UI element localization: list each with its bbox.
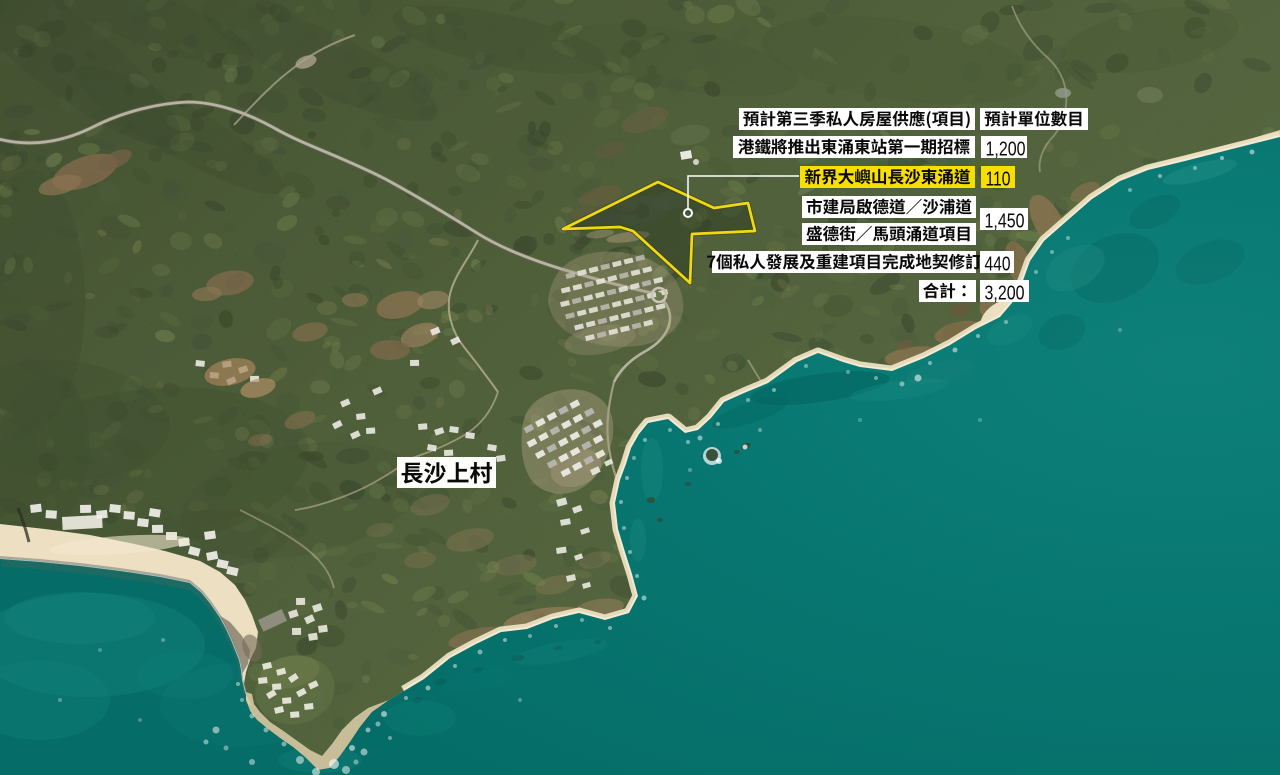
- svg-text:1,450: 1,450: [985, 211, 1025, 233]
- svg-text:110: 110: [986, 169, 1011, 191]
- svg-text:440: 440: [985, 254, 1011, 276]
- svg-text:3,200: 3,200: [985, 283, 1025, 305]
- svg-text:1,200: 1,200: [986, 139, 1026, 161]
